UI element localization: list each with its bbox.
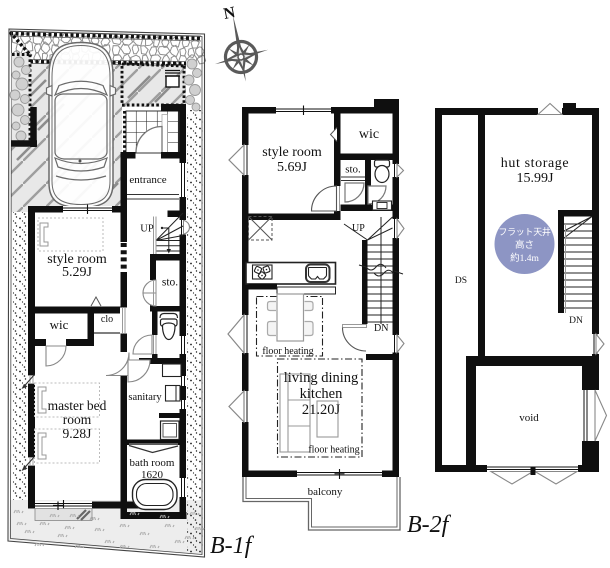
svg-text:DS: DS [455, 276, 467, 286]
svg-text:entrance: entrance [129, 174, 166, 186]
svg-text:フラット天井: フラット天井 [498, 226, 551, 237]
svg-text:5.29J: 5.29J [62, 265, 93, 280]
svg-text:15.99J: 15.99J [517, 171, 555, 186]
svg-text:sanitary: sanitary [128, 392, 162, 403]
svg-text:room: room [63, 412, 92, 427]
svg-text:B-1f: B-1f [210, 533, 255, 559]
svg-text:9.28J: 9.28J [63, 426, 92, 441]
svg-text:clo: clo [101, 314, 113, 325]
svg-text:B-2f: B-2f [407, 512, 452, 538]
svg-text:style room: style room [262, 145, 322, 160]
svg-text:balcony: balcony [308, 486, 343, 498]
svg-text:bath room: bath room [130, 457, 175, 469]
svg-text:floor heating: floor heating [262, 346, 313, 357]
svg-text:kitchen: kitchen [300, 386, 343, 402]
svg-text:高さ: 高さ [515, 239, 534, 251]
svg-text:sto.: sto. [162, 277, 178, 289]
svg-text:5.69J: 5.69J [277, 160, 308, 175]
svg-text:wic: wic [50, 317, 69, 332]
svg-text:21.20J: 21.20J [302, 402, 341, 418]
svg-text:DN: DN [569, 316, 583, 326]
svg-text:void: void [519, 412, 539, 424]
svg-text:DN: DN [374, 323, 388, 334]
svg-text:UP: UP [140, 224, 154, 235]
svg-text:wic: wic [359, 127, 379, 142]
svg-text:約1.4m: 約1.4m [510, 252, 539, 264]
svg-text:living dining: living dining [284, 370, 359, 386]
svg-text:floor heating: floor heating [308, 445, 359, 456]
svg-text:UP: UP [352, 223, 365, 234]
svg-text:master bed: master bed [48, 398, 107, 413]
svg-text:hut storage: hut storage [501, 156, 569, 171]
svg-text:sto.: sto. [345, 164, 361, 176]
